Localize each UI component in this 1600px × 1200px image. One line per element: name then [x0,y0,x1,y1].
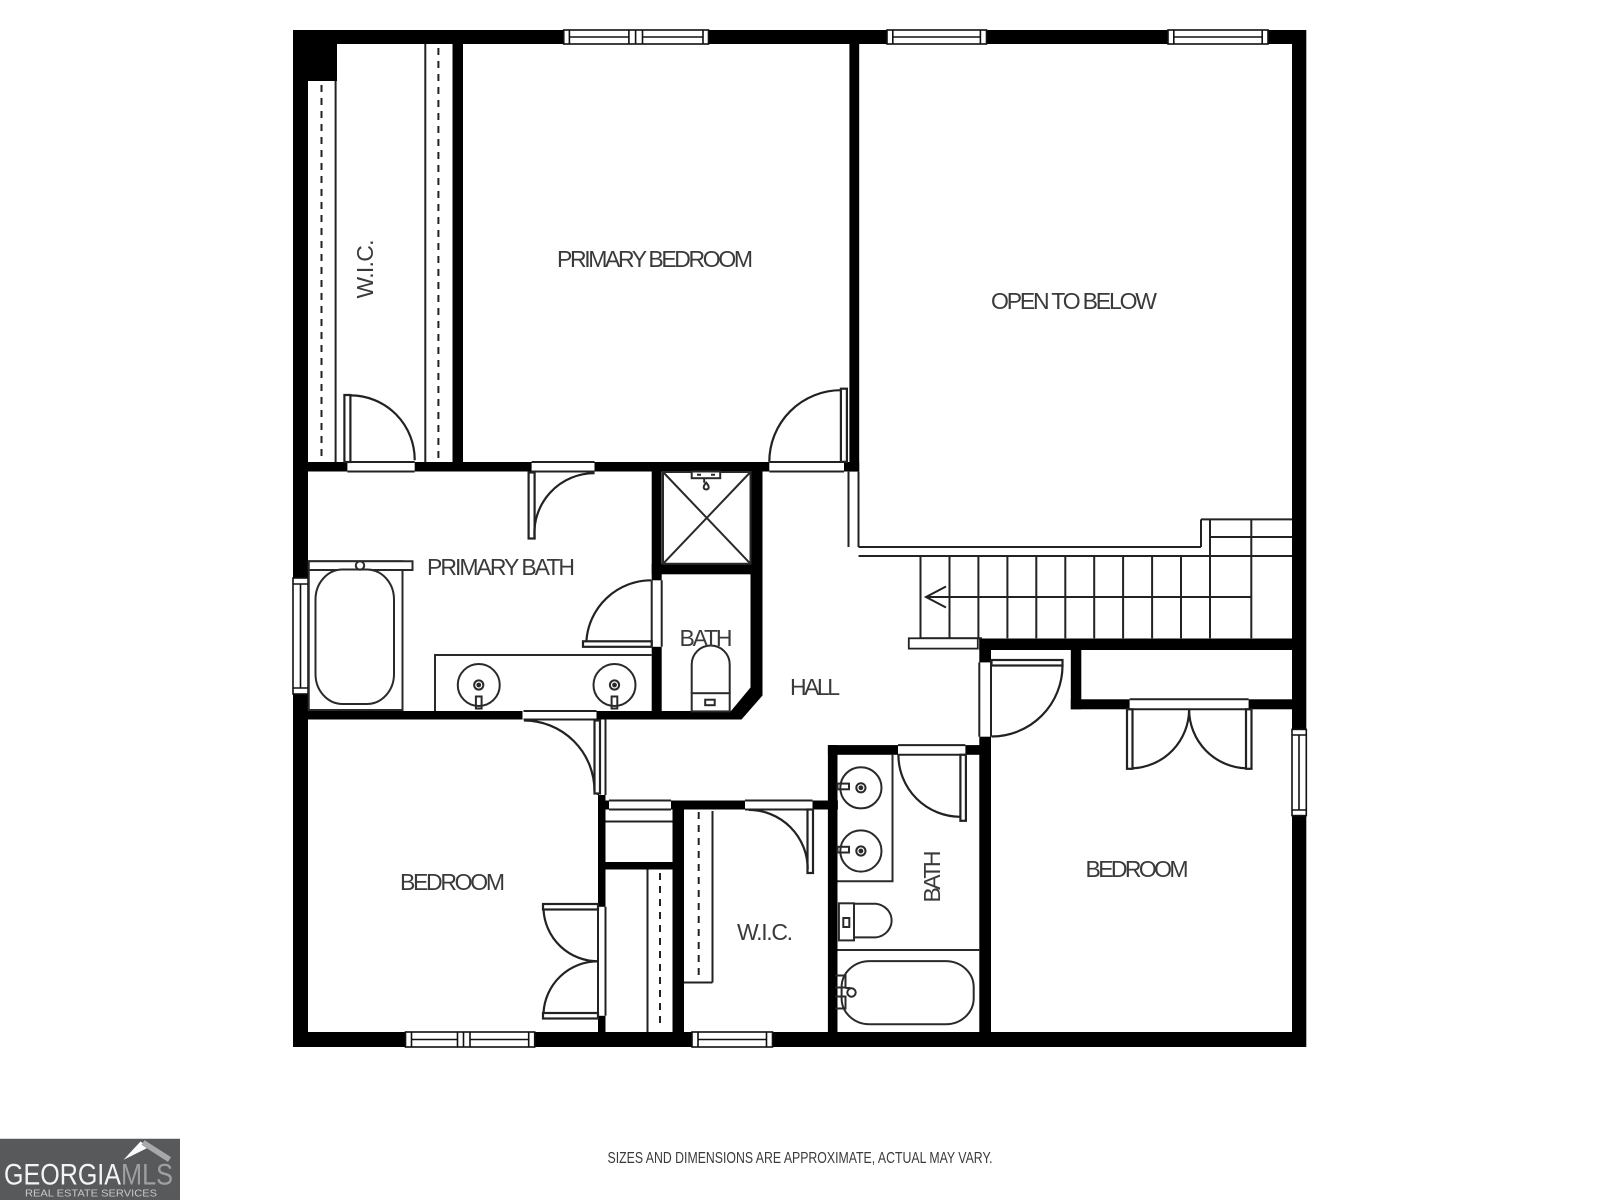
svg-text:BEDROOM: BEDROOM [1086,856,1189,882]
svg-text:BATH: BATH [919,851,945,903]
svg-text:HALL: HALL [790,674,840,700]
svg-text:W.I.C.: W.I.C. [352,240,378,299]
svg-text:OPEN TO BELOW: OPEN TO BELOW [991,288,1157,314]
svg-text:BEDROOM: BEDROOM [400,869,505,895]
svg-text:BATH: BATH [680,625,733,651]
svg-text:PRIMARY BATH: PRIMARY BATH [427,554,575,580]
svg-text:REAL ESTATE SERVICES: REAL ESTATE SERVICES [25,1188,157,1200]
svg-text:W.I.C.: W.I.C. [737,919,793,945]
svg-text:SIZES AND DIMENSIONS ARE APPRO: SIZES AND DIMENSIONS ARE APPROXIMATE, AC… [608,1150,993,1167]
svg-text:PRIMARY BEDROOM: PRIMARY BEDROOM [557,246,753,272]
